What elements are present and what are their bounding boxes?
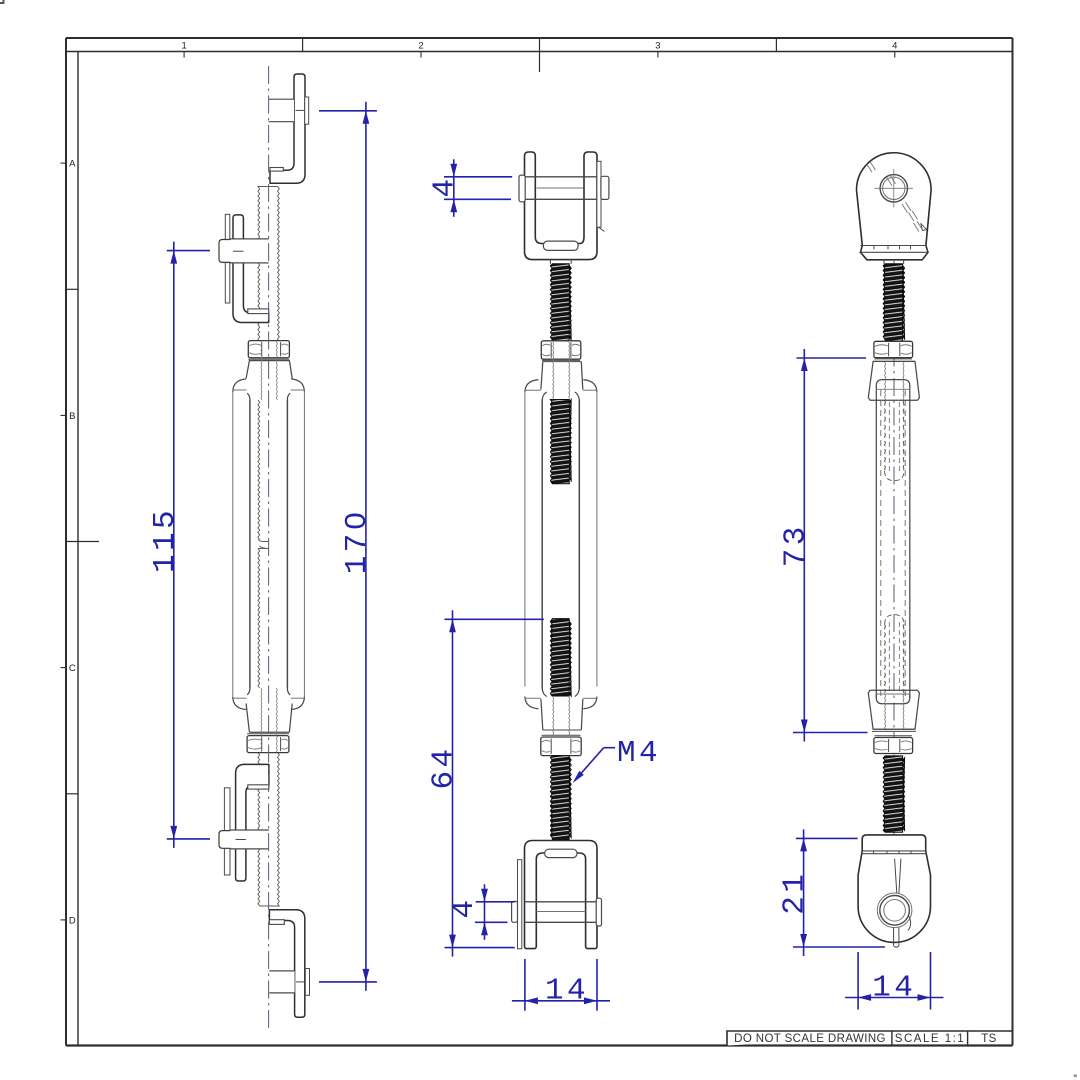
svg-text:21: 21 xyxy=(778,871,813,915)
svg-text:115: 115 xyxy=(148,507,183,573)
svg-text:3: 3 xyxy=(655,40,660,51)
svg-text:4: 4 xyxy=(428,175,463,197)
svg-text:C: C xyxy=(69,663,76,674)
svg-text:170: 170 xyxy=(340,508,375,574)
svg-text:B: B xyxy=(69,411,75,422)
svg-text:14: 14 xyxy=(872,970,916,1005)
svg-text:A: A xyxy=(69,159,76,170)
svg-text:4: 4 xyxy=(447,896,482,918)
svg-text:14: 14 xyxy=(545,974,589,1009)
svg-text:DO NOT SCALE DRAWING: DO NOT SCALE DRAWING xyxy=(734,1033,886,1045)
svg-text:2: 2 xyxy=(418,40,423,51)
svg-text:1: 1 xyxy=(181,40,186,51)
svg-text:SCALE 1:1: SCALE 1:1 xyxy=(895,1033,965,1045)
svg-text:D: D xyxy=(69,915,76,926)
svg-text:64: 64 xyxy=(427,745,462,789)
svg-text:M4: M4 xyxy=(617,736,661,771)
svg-text:TS: TS xyxy=(981,1033,997,1045)
svg-text:4: 4 xyxy=(892,40,897,51)
svg-text:73: 73 xyxy=(778,523,813,567)
